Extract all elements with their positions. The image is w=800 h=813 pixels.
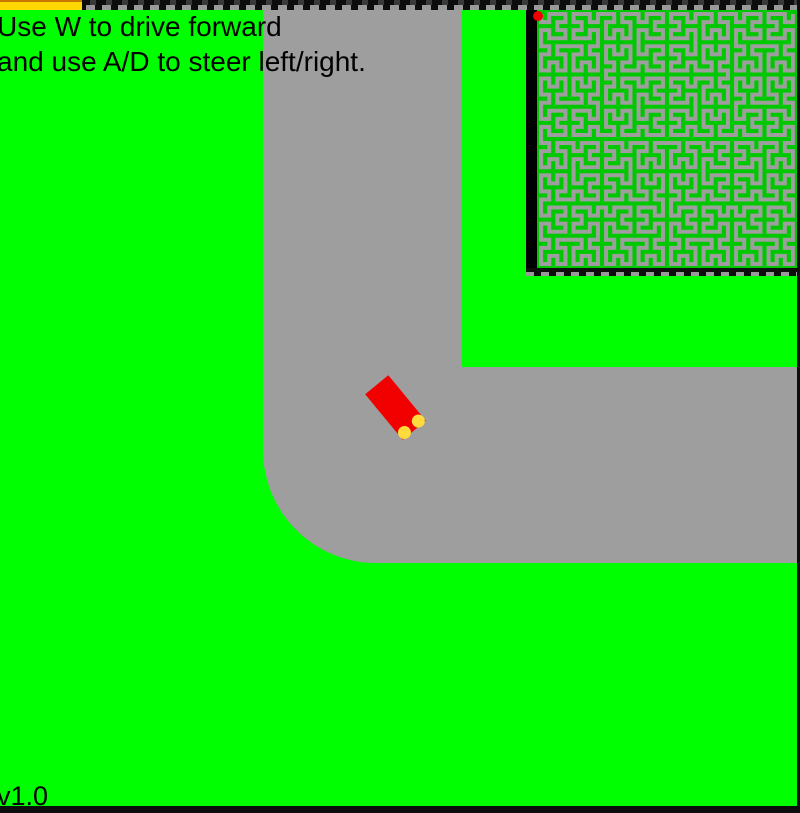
player-position-marker bbox=[533, 11, 543, 21]
instructions-text: Use W to drive forward and use A/D to st… bbox=[0, 9, 366, 79]
minimap-track-path bbox=[541, 14, 793, 264]
game-viewport[interactable]: Use W to drive forward and use A/D to st… bbox=[0, 0, 800, 813]
instructions-line1: Use W to drive forward bbox=[0, 9, 366, 44]
minimap-track bbox=[537, 10, 797, 268]
instructions-line2: and use A/D to steer left/right. bbox=[0, 44, 366, 79]
minimap bbox=[526, 10, 800, 276]
boundary-wall-bottom bbox=[0, 806, 800, 813]
minimap-border-bottom bbox=[526, 268, 800, 276]
minimap-border-bottom-row2 bbox=[526, 272, 800, 276]
